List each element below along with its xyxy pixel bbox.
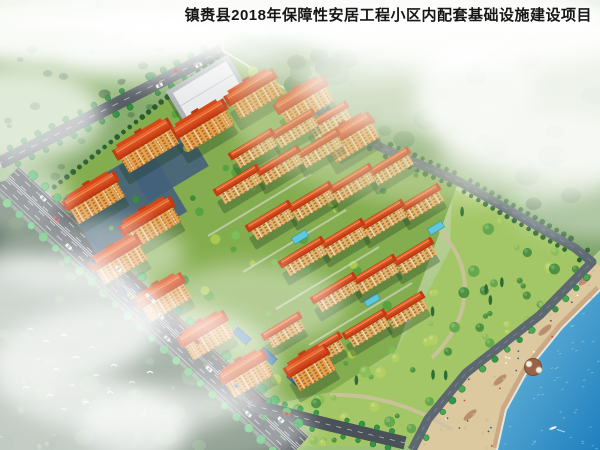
project-title-text: 镇赉县2018年保障性安居工程小区内配套基础设施建设项目	[185, 7, 592, 24]
project-title: 镇赉县2018年保障性安居工程小区内配套基础设施建设项目	[0, 4, 592, 25]
aerial-rendering-scene	[0, 0, 600, 450]
rendering-image: 镇赉县2018年保障性安居工程小区内配套基础设施建设项目	[0, 0, 600, 450]
